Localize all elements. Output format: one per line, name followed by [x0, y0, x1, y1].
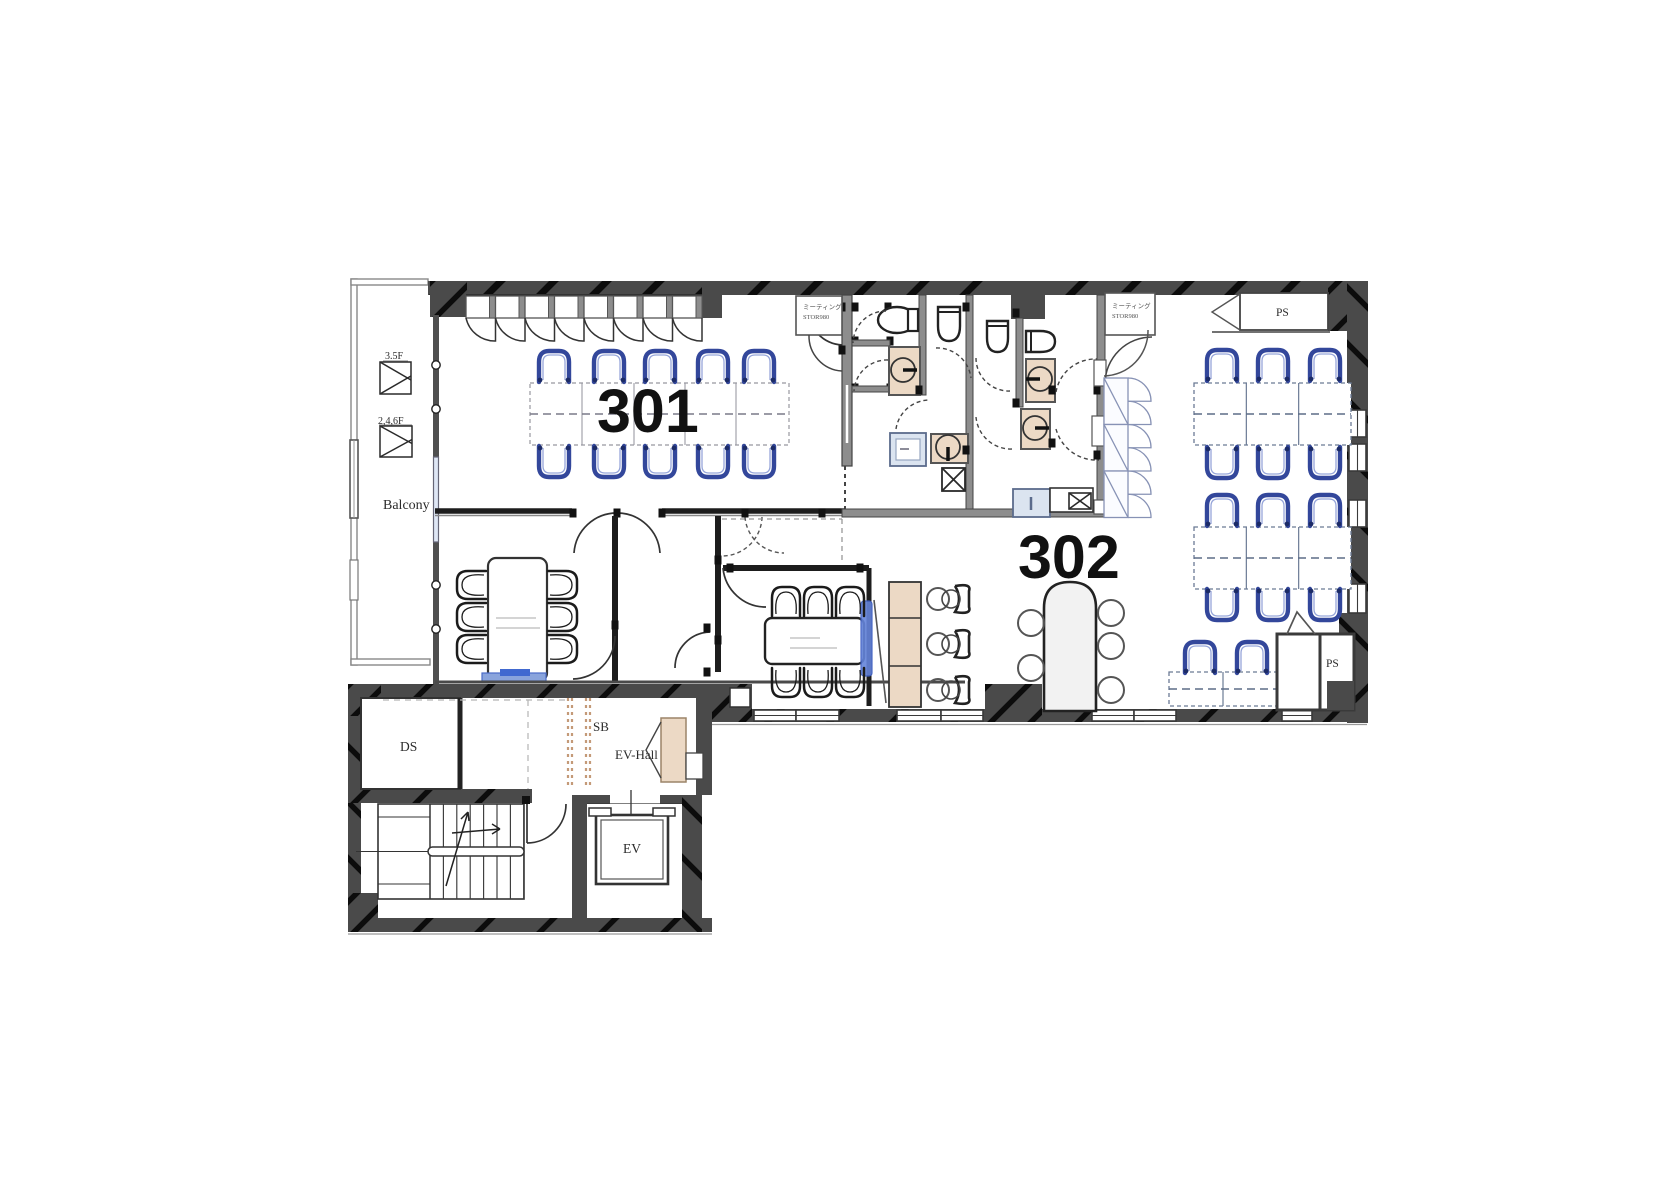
svg-text:EV: EV	[623, 841, 641, 856]
svg-text:STOR980: STOR980	[1112, 313, 1138, 320]
svg-text:Balcony: Balcony	[383, 498, 430, 513]
svg-text:301: 301	[597, 377, 699, 445]
svg-text:PS: PS	[1326, 658, 1339, 670]
svg-text:STOR980: STOR980	[803, 314, 829, 321]
svg-text:ミーティング: ミーティング	[803, 302, 842, 311]
svg-text:DS: DS	[400, 739, 417, 754]
svg-text:SB: SB	[593, 719, 609, 734]
svg-text:PS: PS	[1276, 307, 1289, 319]
svg-text:ミーティング: ミーティング	[1112, 301, 1151, 310]
svg-text:3.5F: 3.5F	[385, 351, 404, 362]
